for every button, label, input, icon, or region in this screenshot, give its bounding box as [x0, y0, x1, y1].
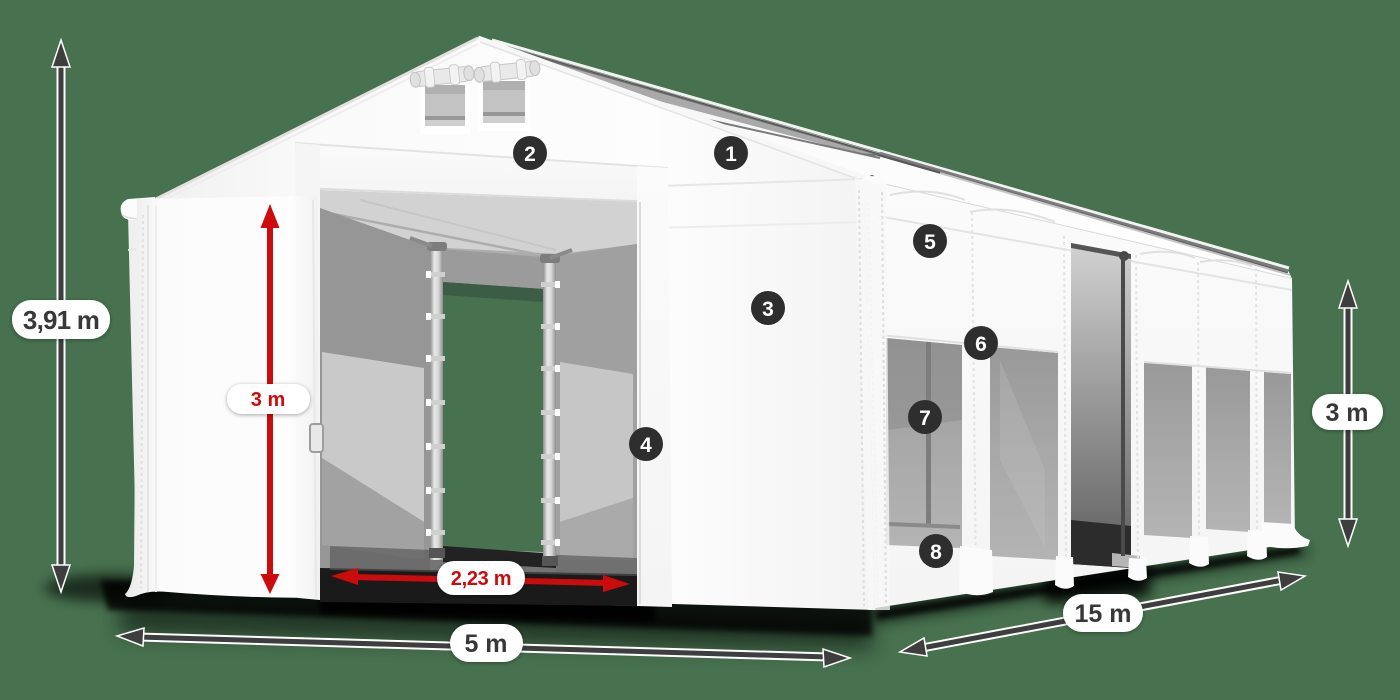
svg-text:15 m: 15 m [1075, 600, 1132, 628]
svg-text:3 m: 3 m [1325, 399, 1368, 427]
svg-text:4: 4 [640, 434, 652, 457]
svg-text:2,23 m: 2,23 m [451, 568, 511, 590]
svg-text:3 m: 3 m [251, 389, 285, 411]
svg-text:3,91 m: 3,91 m [23, 305, 99, 335]
svg-text:2: 2 [524, 143, 536, 166]
svg-text:3: 3 [762, 298, 774, 321]
svg-text:5 m: 5 m [464, 630, 507, 658]
svg-text:7: 7 [919, 407, 931, 430]
svg-text:1: 1 [725, 143, 737, 166]
svg-text:8: 8 [930, 541, 942, 564]
svg-text:5: 5 [924, 231, 936, 254]
svg-text:6: 6 [975, 333, 987, 356]
